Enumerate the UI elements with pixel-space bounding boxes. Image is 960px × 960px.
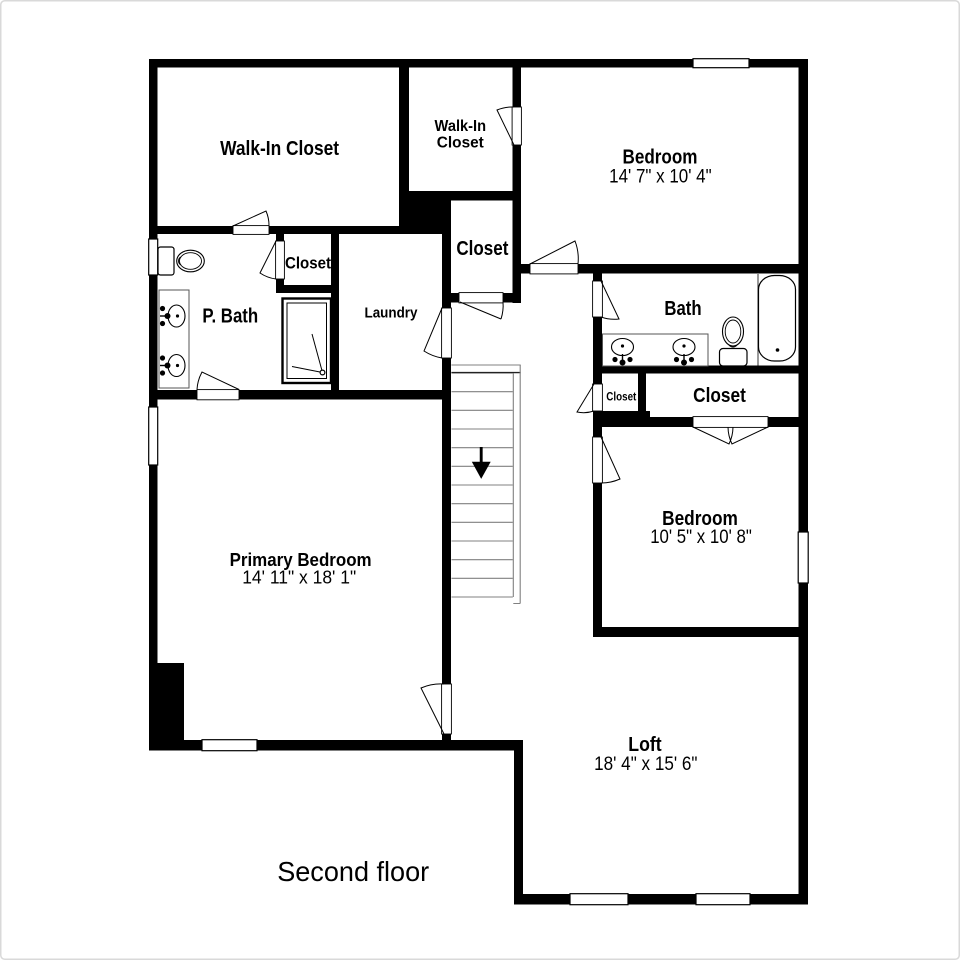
svg-text:18' 4" x 15' 6": 18' 4" x 15' 6" [594, 754, 697, 775]
svg-text:Second floor: Second floor [277, 856, 429, 887]
svg-text:Bedroom: Bedroom [623, 147, 698, 169]
svg-text:Laundry: Laundry [365, 306, 418, 322]
svg-text:Closet: Closet [693, 385, 746, 407]
svg-text:10' 5" x 10' 8": 10' 5" x 10' 8" [650, 527, 752, 548]
svg-text:14' 7" x 10' 4": 14' 7" x 10' 4" [609, 167, 712, 188]
svg-text:Walk-In Closet: Walk-In Closet [220, 138, 339, 160]
svg-text:Walk-In: Walk-In [435, 118, 487, 135]
svg-text:Closet: Closet [456, 238, 508, 260]
svg-text:Closet: Closet [606, 392, 636, 404]
svg-text:Loft: Loft [628, 734, 662, 756]
svg-text:Closet: Closet [437, 135, 485, 152]
svg-text:Bath: Bath [664, 298, 701, 320]
svg-text:Closet: Closet [285, 255, 331, 273]
svg-text:14' 11" x 18' 1": 14' 11" x 18' 1" [242, 568, 356, 588]
svg-text:P. Bath: P. Bath [202, 306, 258, 328]
